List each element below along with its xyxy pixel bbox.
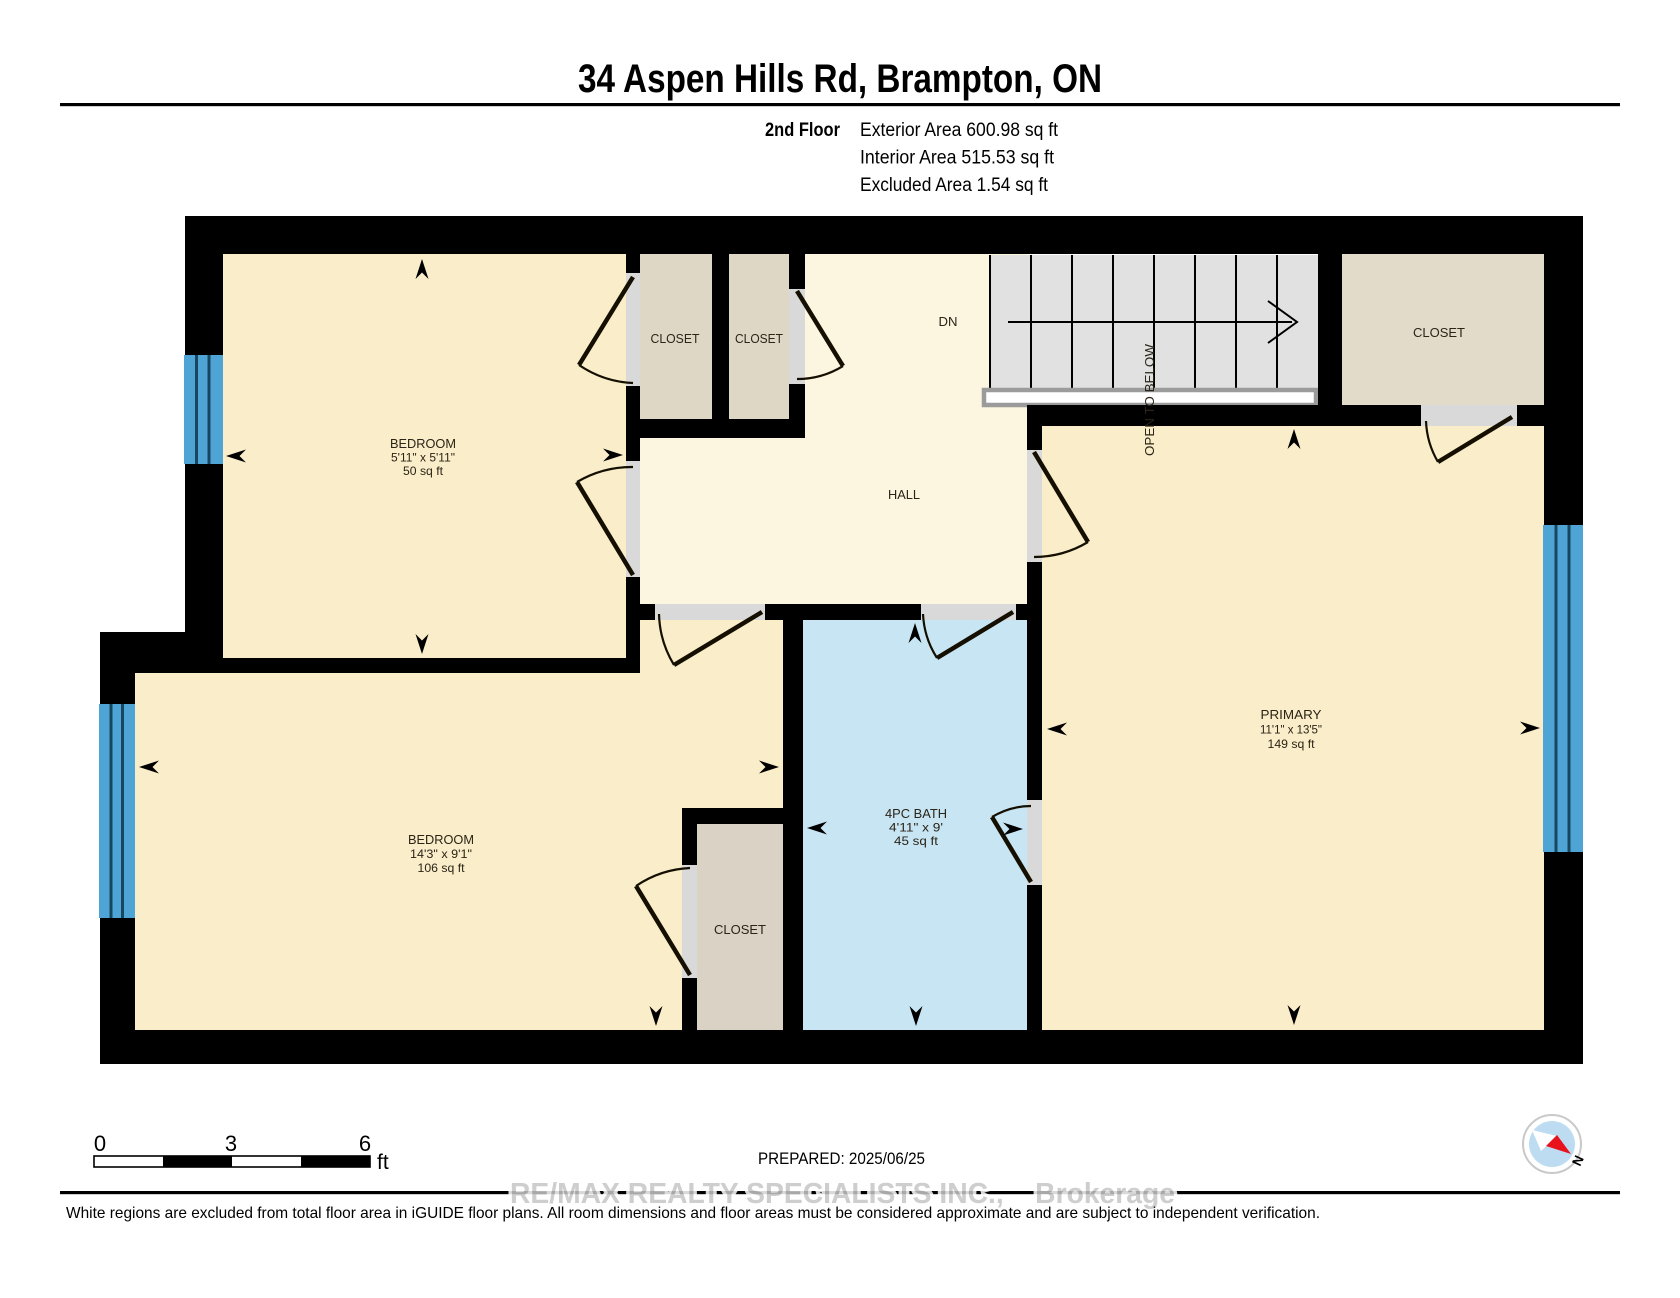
svg-text:0: 0 <box>94 1131 106 1156</box>
svg-text:5'11" x 5'11": 5'11" x 5'11" <box>391 451 455 465</box>
svg-text:PRIMARY: PRIMARY <box>1261 708 1323 722</box>
svg-text:Exterior Area 600.98 sq ft: Exterior Area 600.98 sq ft <box>860 120 1059 141</box>
svg-text:PREPARED: 2025/06/25: PREPARED: 2025/06/25 <box>758 1149 925 1168</box>
svg-text:Interior Area 515.53 sq ft: Interior Area 515.53 sq ft <box>860 148 1055 169</box>
svg-text:White regions are excluded fro: White regions are excluded from total fl… <box>66 1205 1320 1222</box>
svg-text:DN: DN <box>939 315 958 329</box>
svg-text:50 sq ft: 50 sq ft <box>403 464 444 478</box>
svg-text:BEDROOM: BEDROOM <box>408 833 474 847</box>
svg-text:HALL: HALL <box>888 488 920 502</box>
svg-text:2nd Floor: 2nd Floor <box>765 120 841 141</box>
svg-text:106 sq ft: 106 sq ft <box>418 861 466 875</box>
svg-text:4PC BATH: 4PC BATH <box>885 807 947 821</box>
svg-text:ft: ft <box>377 1151 389 1174</box>
svg-text:CLOSET: CLOSET <box>1413 326 1465 340</box>
svg-text:6: 6 <box>359 1131 371 1156</box>
svg-text:4'11" x 9': 4'11" x 9' <box>889 821 943 835</box>
svg-text:34 Aspen Hills Rd, Brampton, O: 34 Aspen Hills Rd, Brampton, ON <box>578 57 1102 101</box>
svg-text:45 sq ft: 45 sq ft <box>894 834 939 848</box>
svg-text:11'1" x 13'5": 11'1" x 13'5" <box>1260 723 1322 737</box>
svg-text:3: 3 <box>225 1131 237 1156</box>
svg-text:CLOSET: CLOSET <box>714 923 766 937</box>
svg-text:CLOSET: CLOSET <box>735 332 783 346</box>
svg-text:CLOSET: CLOSET <box>651 332 700 346</box>
svg-text:BEDROOM: BEDROOM <box>390 437 456 451</box>
svg-text:OPEN TO BELOW: OPEN TO BELOW <box>1143 344 1157 456</box>
svg-text:Excluded Area 1.54 sq ft: Excluded Area 1.54 sq ft <box>860 175 1049 196</box>
svg-text:149 sq ft: 149 sq ft <box>1268 737 1316 751</box>
svg-text:14'3" x 9'1": 14'3" x 9'1" <box>410 847 472 861</box>
